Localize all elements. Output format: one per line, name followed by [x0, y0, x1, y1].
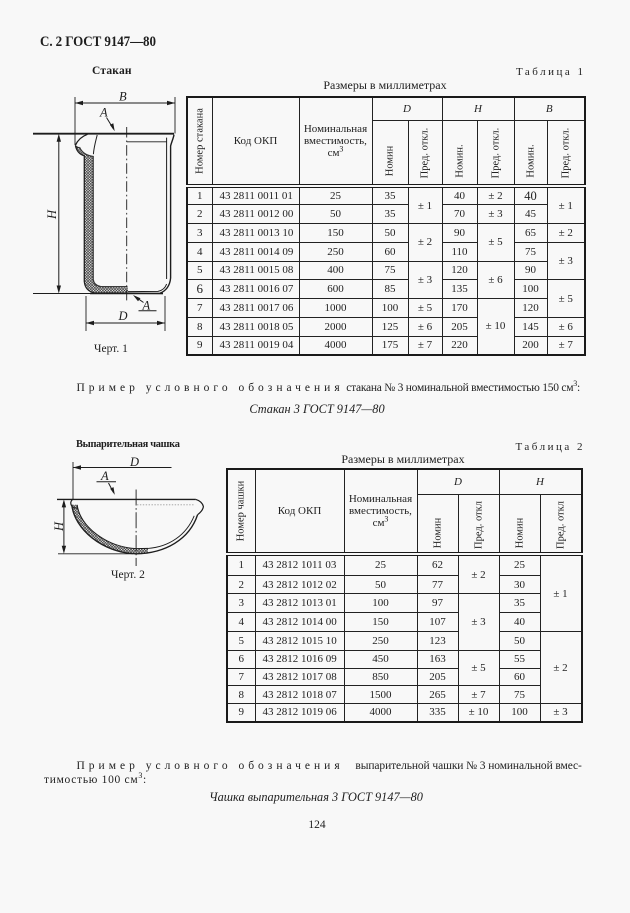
svg-text:B: B — [119, 90, 127, 104]
svg-text:D: D — [118, 309, 128, 323]
svg-text:H: H — [52, 521, 66, 532]
svg-text:D: D — [129, 455, 139, 469]
svg-text:H: H — [45, 209, 59, 220]
svg-text:A: A — [100, 469, 109, 483]
svg-text:A: A — [142, 299, 151, 313]
svg-text:A: A — [99, 106, 108, 120]
